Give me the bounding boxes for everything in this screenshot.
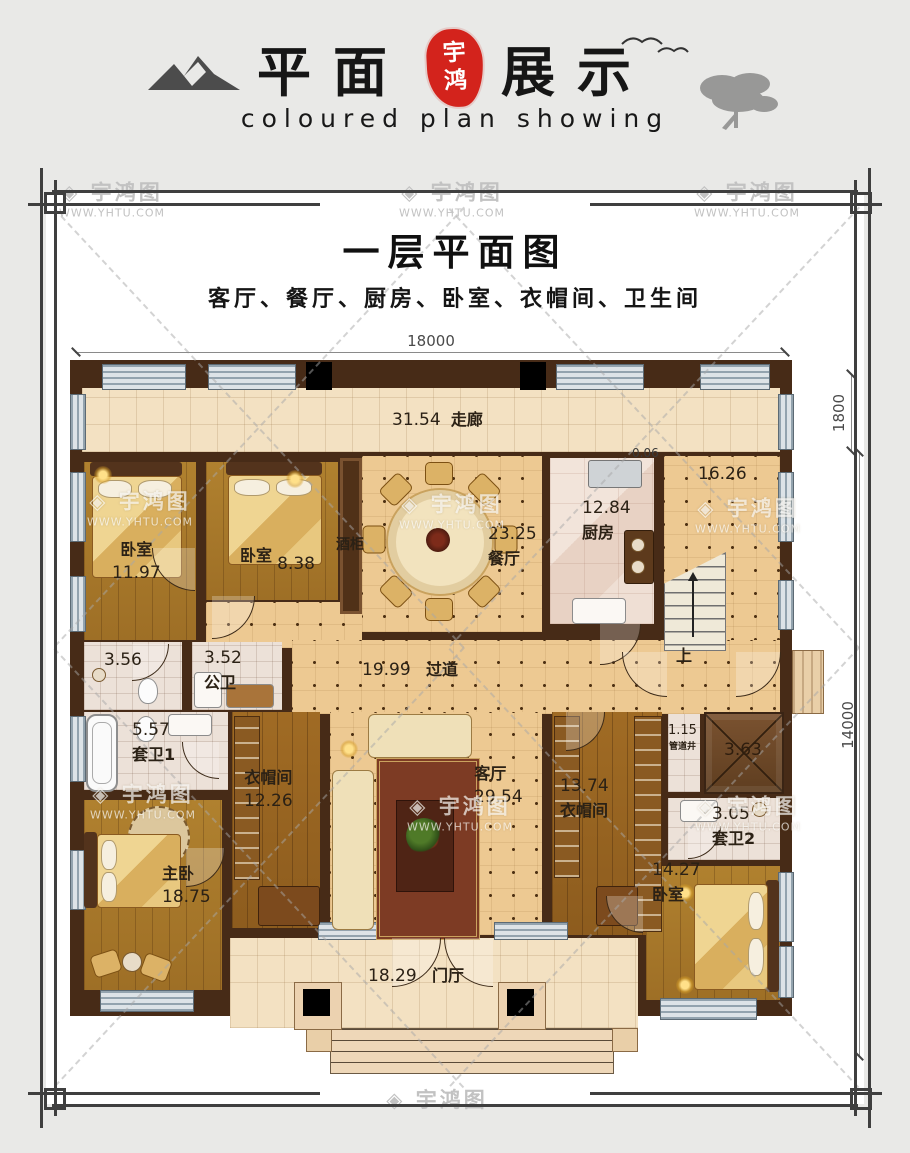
dim-corridor-right: 1800 (830, 394, 848, 432)
watermark-brand: 宇鸿图 (122, 783, 194, 807)
room-corridor-label: 31.54 走廊 (392, 408, 483, 433)
bed-headboard (226, 462, 322, 475)
burner (631, 560, 645, 574)
step-ledge-left (306, 1028, 332, 1052)
watermark: ◈ 宇鸿图 WWW.YHTU.COM (694, 177, 800, 220)
frame-left-line2 (54, 180, 57, 1116)
plan-title: 一层平面图 (0, 222, 910, 276)
yhtu-logo-icon: ◈ (409, 795, 428, 819)
watermark-brand: 宇鸿图 (119, 490, 191, 514)
watermark-url: WWW.YHTU.COM (695, 821, 801, 834)
dim-width-top: 18000 (400, 332, 462, 350)
frame-top-line-left2 (28, 203, 320, 206)
frame-corner-knot-bl (44, 1088, 66, 1110)
window (70, 472, 86, 542)
seal-char-2: 鸿 (444, 67, 468, 96)
yhtu-logo-icon: ◈ (92, 783, 111, 807)
room-bedroom-br-label: 14.27 卧室 (652, 858, 701, 906)
yhtu-logo-icon: ◈ (89, 490, 108, 514)
ac-ledge (792, 650, 824, 714)
window (70, 394, 86, 450)
watermark: ◈ 宇鸿图 WWW.YHTU.COM (87, 486, 193, 529)
watermark: ◈ 宇鸿图 WWW.YHTU.COM (90, 779, 196, 822)
watermark-url: WWW.YHTU.COM (695, 523, 801, 536)
burner (631, 538, 645, 552)
room-kitchen-label: 12.84 厨房 (582, 496, 631, 544)
watermark: ◈ 宇鸿图 (386, 1084, 487, 1114)
frame-right-line (868, 168, 871, 1128)
window (778, 580, 794, 630)
dim-line-top (75, 352, 786, 353)
room-master-label: 主卧 18.75 (162, 862, 211, 910)
window (494, 922, 568, 940)
column (520, 362, 546, 390)
pillow (748, 892, 764, 930)
frame-bottom-line-right2 (590, 1092, 882, 1095)
frame-top-line (52, 190, 858, 193)
window (70, 716, 86, 782)
room-cloakroom-l-label: 衣帽间 12.26 (244, 766, 293, 814)
frame-bottom-line (52, 1104, 858, 1107)
watermark: ◈ 宇鸿图 WWW.YHTU.COM (399, 177, 505, 220)
window (100, 990, 194, 1012)
window (778, 946, 794, 998)
room-bedroom-tl-label: 卧室 11.97 (112, 538, 161, 586)
watermark-url: WWW.YHTU.COM (90, 809, 196, 822)
room-cloakroom-r-label: 13.74 衣帽间 (560, 774, 609, 822)
frame-corner-knot-tr (850, 192, 872, 214)
watermark: ◈ 宇鸿图 WWW.YHTU.COM (399, 489, 505, 532)
room-hallway-label: 19.99 过道 (362, 658, 458, 683)
frame-bottom-line-left2 (28, 1092, 320, 1095)
header-title-right: 展示 (501, 28, 653, 107)
watermark: ◈ 宇鸿图 WWW.YHTU.COM (407, 791, 513, 834)
watermark-url: WWW.YHTU.COM (87, 516, 193, 529)
watermark-brand: 宇鸿图 (727, 795, 799, 819)
pillow (234, 479, 270, 496)
watermark: ◈ 宇鸿图 WWW.YHTU.COM (59, 177, 165, 220)
watermark-brand: 宇鸿图 (439, 795, 511, 819)
window (660, 998, 757, 1020)
watermark: ◈ 宇鸿图 WWW.YHTU.COM (695, 493, 801, 536)
watermark-url: WWW.YHTU.COM (399, 207, 505, 220)
header: 平面 宇鸿 展示 (0, 28, 910, 107)
entry-steps (330, 1028, 614, 1074)
wall-dim-label: 0.06 (632, 440, 659, 463)
watermark-url: WWW.YHTU.COM (59, 207, 165, 220)
brand-seal: 宇鸿 (425, 27, 485, 108)
pillow (101, 840, 117, 870)
room-wc-label: 3.56 (104, 648, 142, 673)
window (778, 394, 794, 450)
porch-column (303, 989, 330, 1016)
yhtu-logo-icon: ◈ (386, 1088, 405, 1112)
room-ensuite1-label: 5.57 套卫1 (132, 718, 175, 766)
header-title-left: 平面 (257, 28, 409, 107)
yhtu-logo-icon: ◈ (401, 493, 420, 517)
dim-line-right-lower (859, 452, 860, 1056)
room-public-bath-label: 3.52 公卫 (204, 646, 242, 694)
kitchen-sink (588, 460, 642, 488)
window (102, 364, 186, 390)
room-foyer-label: 18.29 门厅 (368, 964, 464, 989)
room-pipe-shaft-label: 1.15 管道井 (668, 722, 697, 754)
frame-top-line-right2 (590, 203, 882, 206)
room-stair-hall-label: 16.26 (698, 462, 747, 487)
pillow (101, 872, 117, 902)
plan-room-list: 客厅、餐厅、厨房、卧室、衣帽间、卫生间 (0, 281, 910, 313)
dim-line-right-upper (851, 374, 852, 452)
dresser (258, 886, 320, 926)
watermark-url: WWW.YHTU.COM (399, 519, 505, 532)
floor-lamp (340, 740, 358, 758)
sofa (332, 770, 374, 930)
stairs-up-arrow (692, 575, 694, 637)
frame-right-line2 (854, 180, 857, 1116)
sofa (368, 714, 472, 758)
yhtu-logo-icon: ◈ (697, 795, 716, 819)
watermark-url: WWW.YHTU.COM (407, 821, 513, 834)
page: { "header": { "title_left": "平面", "title… (0, 0, 910, 1153)
watermark-brand: 宇鸿图 (727, 497, 799, 521)
yhtu-logo-icon: ◈ (697, 497, 716, 521)
toilet (138, 678, 158, 704)
column (306, 362, 332, 390)
room-shaft-label: 3.63 (724, 738, 762, 763)
window (70, 576, 86, 632)
watermark-brand: 宇鸿图 (416, 1088, 488, 1112)
side-table (122, 952, 142, 972)
frame-corner-knot-br (850, 1088, 872, 1110)
frame-corner-knot-tl (44, 192, 66, 214)
dining-centerpiece (426, 528, 450, 552)
dining-chair (425, 462, 453, 485)
ceiling-light (676, 976, 694, 994)
watermark-brand: 宇鸿图 (431, 493, 503, 517)
watermark: ◈ 宇鸿图 WWW.YHTU.COM (695, 791, 801, 834)
ceiling-light (94, 466, 112, 484)
header-subtitle: coloured plan showing (0, 104, 910, 133)
stairs-up-label: 上 (676, 644, 692, 667)
header-title: 平面 宇鸿 展示 (257, 28, 653, 107)
watermark-url: WWW.YHTU.COM (694, 207, 800, 220)
seal-char-1: 宇 (442, 39, 466, 68)
step-ledge-right (612, 1028, 638, 1052)
porch-floor (230, 1005, 638, 1028)
wine-cabinet-label: 酒柜 (336, 532, 364, 555)
room-bedroom-tm-label: 卧室 8.38 (240, 544, 315, 569)
window (778, 872, 794, 942)
bed-headboard (84, 832, 97, 908)
kitchen-table (572, 598, 626, 624)
frame-left-line (40, 168, 43, 1128)
